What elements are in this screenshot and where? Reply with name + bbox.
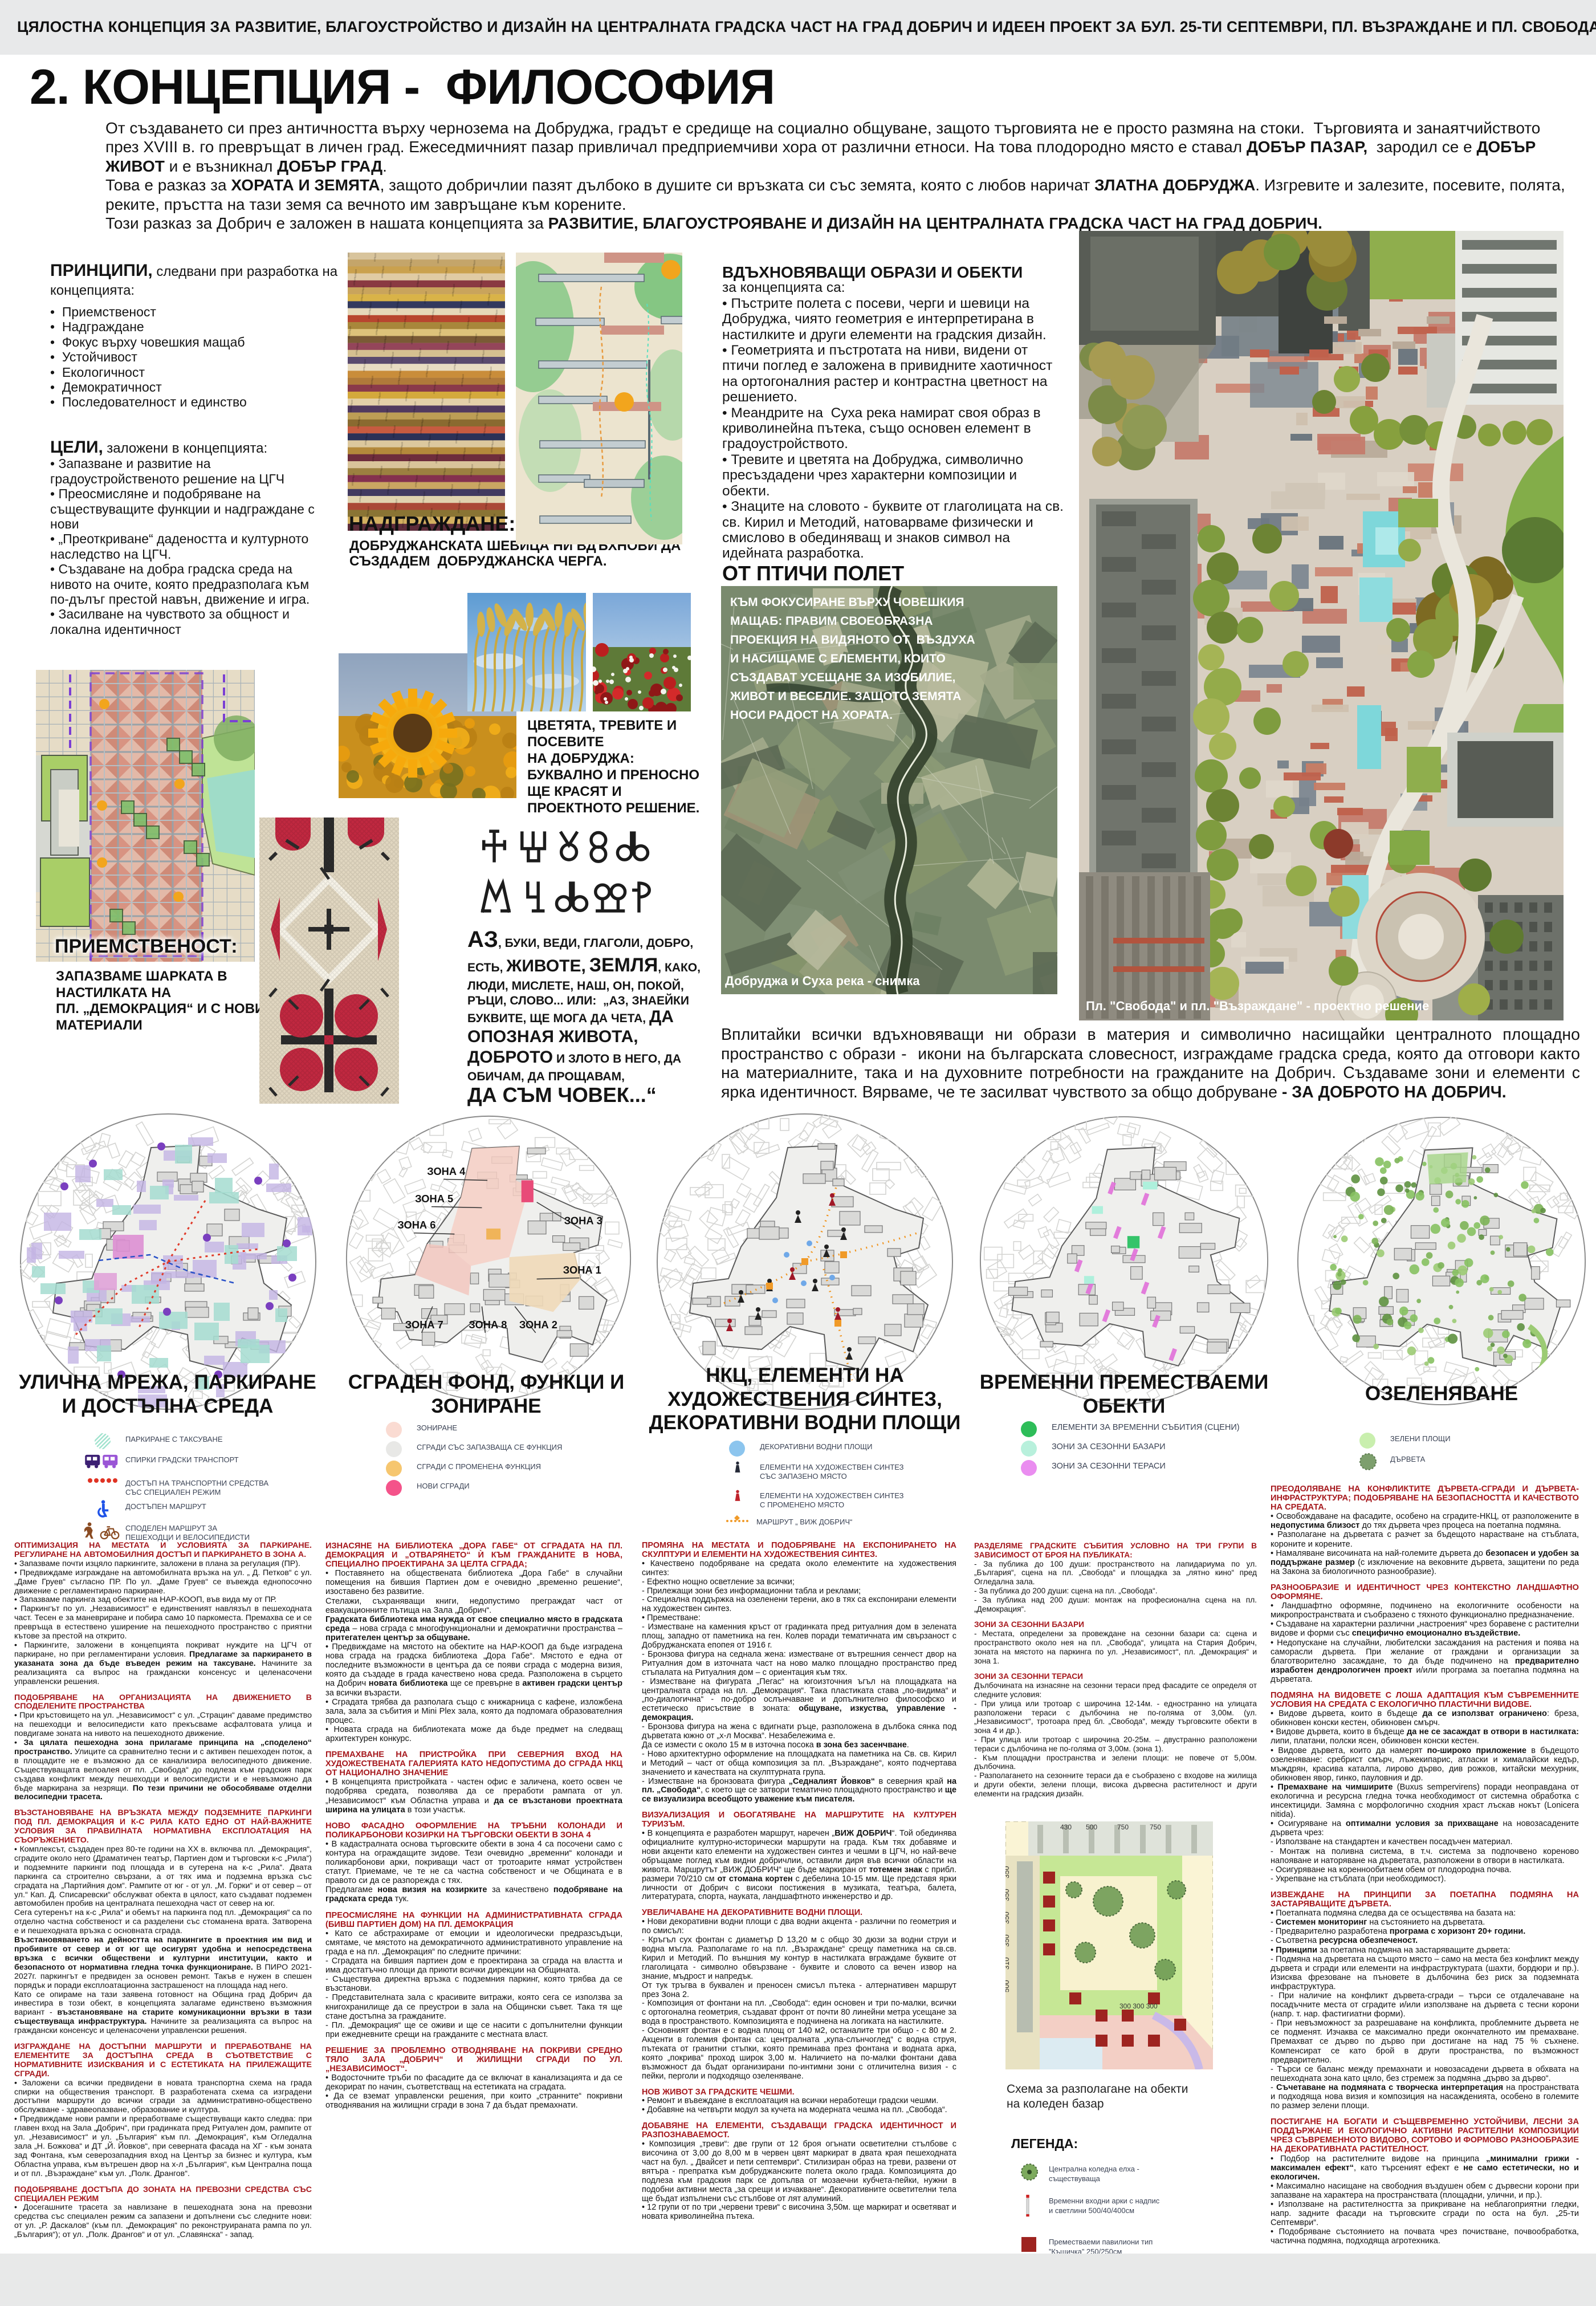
svg-text:ЗОНА 8: ЗОНА 8 (469, 1319, 507, 1331)
svg-text:ЗОНА 6: ЗОНА 6 (397, 1219, 435, 1231)
svg-text:ЗОНА 5: ЗОНА 5 (415, 1193, 453, 1205)
svg-text:ЗОНА 7: ЗОНА 7 (405, 1319, 443, 1331)
svg-text:300 300 300: 300 300 300 (1119, 2002, 1158, 2010)
svg-text:350: 350 (1005, 1889, 1011, 1901)
svg-text:750: 750 (1150, 1823, 1161, 1831)
svg-text:350: 350 (1005, 1912, 1011, 1924)
svg-text:500: 500 (1005, 1980, 1011, 1992)
svg-text:750: 750 (1117, 1823, 1129, 1831)
svg-text:ЗОНА 3: ЗОНА 3 (564, 1214, 602, 1226)
svg-text:310: 310 (1005, 1957, 1011, 1970)
svg-text:ЗОНА 2: ЗОНА 2 (519, 1319, 557, 1331)
svg-text:350: 350 (1005, 1866, 1011, 1878)
svg-text:ЗОНА 4: ЗОНА 4 (427, 1165, 466, 1177)
svg-text:350: 350 (1005, 1934, 1011, 1947)
svg-text:430: 430 (1060, 1823, 1072, 1831)
svg-text:ЗОНА 1: ЗОНА 1 (563, 1264, 601, 1276)
svg-text:500: 500 (1086, 1823, 1097, 1831)
